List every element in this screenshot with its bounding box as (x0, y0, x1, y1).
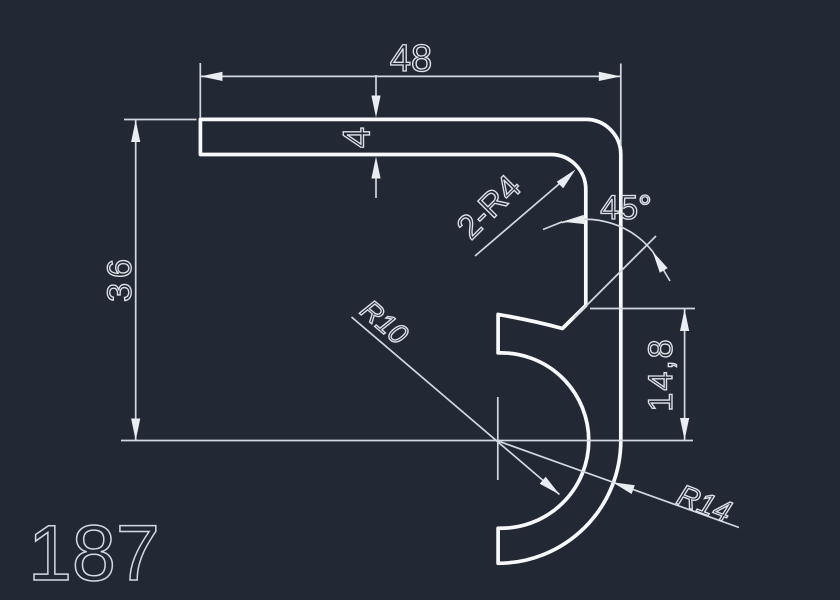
svg-text:36: 36 (101, 254, 139, 302)
svg-text:48: 48 (390, 38, 432, 80)
svg-text:4: 4 (337, 127, 379, 148)
svg-text:14,8: 14,8 (642, 337, 680, 411)
svg-text:45°: 45° (600, 189, 651, 227)
svg-text:187: 187 (28, 508, 160, 597)
